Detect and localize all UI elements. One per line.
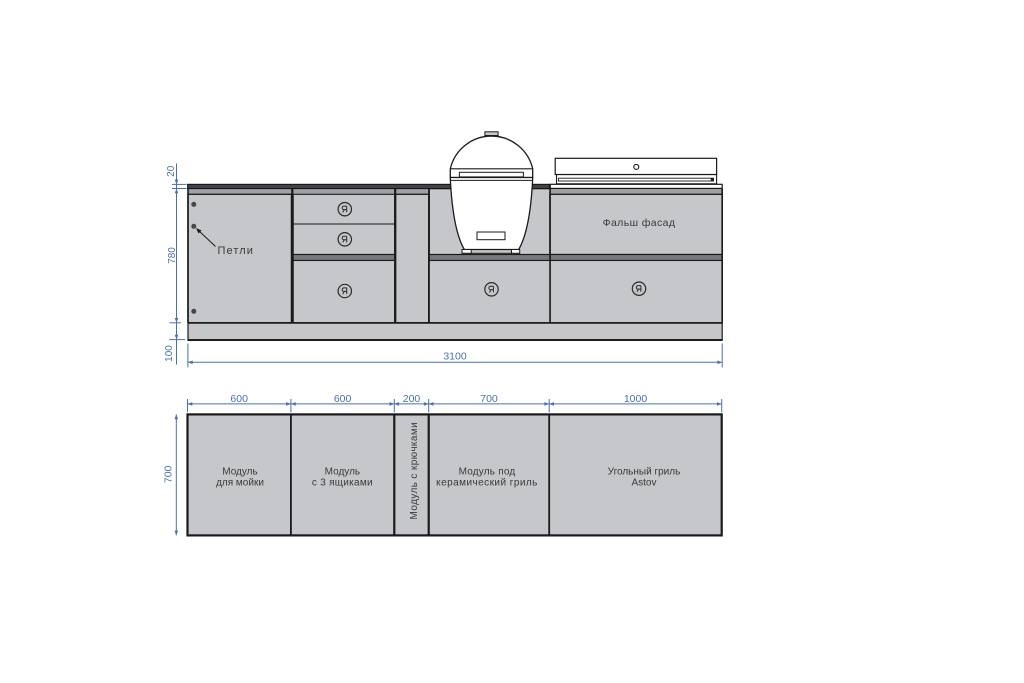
svg-text:керамический гриль: керамический гриль: [436, 478, 538, 489]
svg-text:1000: 1000: [624, 393, 648, 405]
svg-text:Фальш фасад: Фальш фасад: [603, 217, 676, 229]
svg-text:Угольный гриль: Угольный гриль: [608, 467, 681, 478]
svg-text:700: 700: [480, 393, 498, 405]
svg-text:с 3 ящиками: с 3 ящиками: [312, 478, 373, 489]
svg-text:Astov: Astov: [631, 478, 656, 489]
svg-text:Модуль под: Модуль под: [459, 467, 516, 478]
svg-text:100: 100: [164, 345, 175, 362]
svg-text:20: 20: [166, 165, 177, 177]
svg-text:600: 600: [230, 393, 248, 405]
svg-text:Модуль: Модуль: [325, 467, 360, 478]
svg-text:Модуль: Модуль: [222, 467, 257, 478]
svg-text:780: 780: [167, 247, 178, 264]
svg-text:700: 700: [163, 465, 175, 483]
svg-text:Модуль с крючками: Модуль с крючками: [409, 422, 420, 520]
svg-text:Петли: Петли: [218, 245, 255, 257]
svg-text:3100: 3100: [443, 351, 467, 363]
svg-text:для мойки: для мойки: [216, 478, 264, 489]
svg-text:600: 600: [334, 393, 352, 405]
svg-text:200: 200: [403, 393, 421, 405]
